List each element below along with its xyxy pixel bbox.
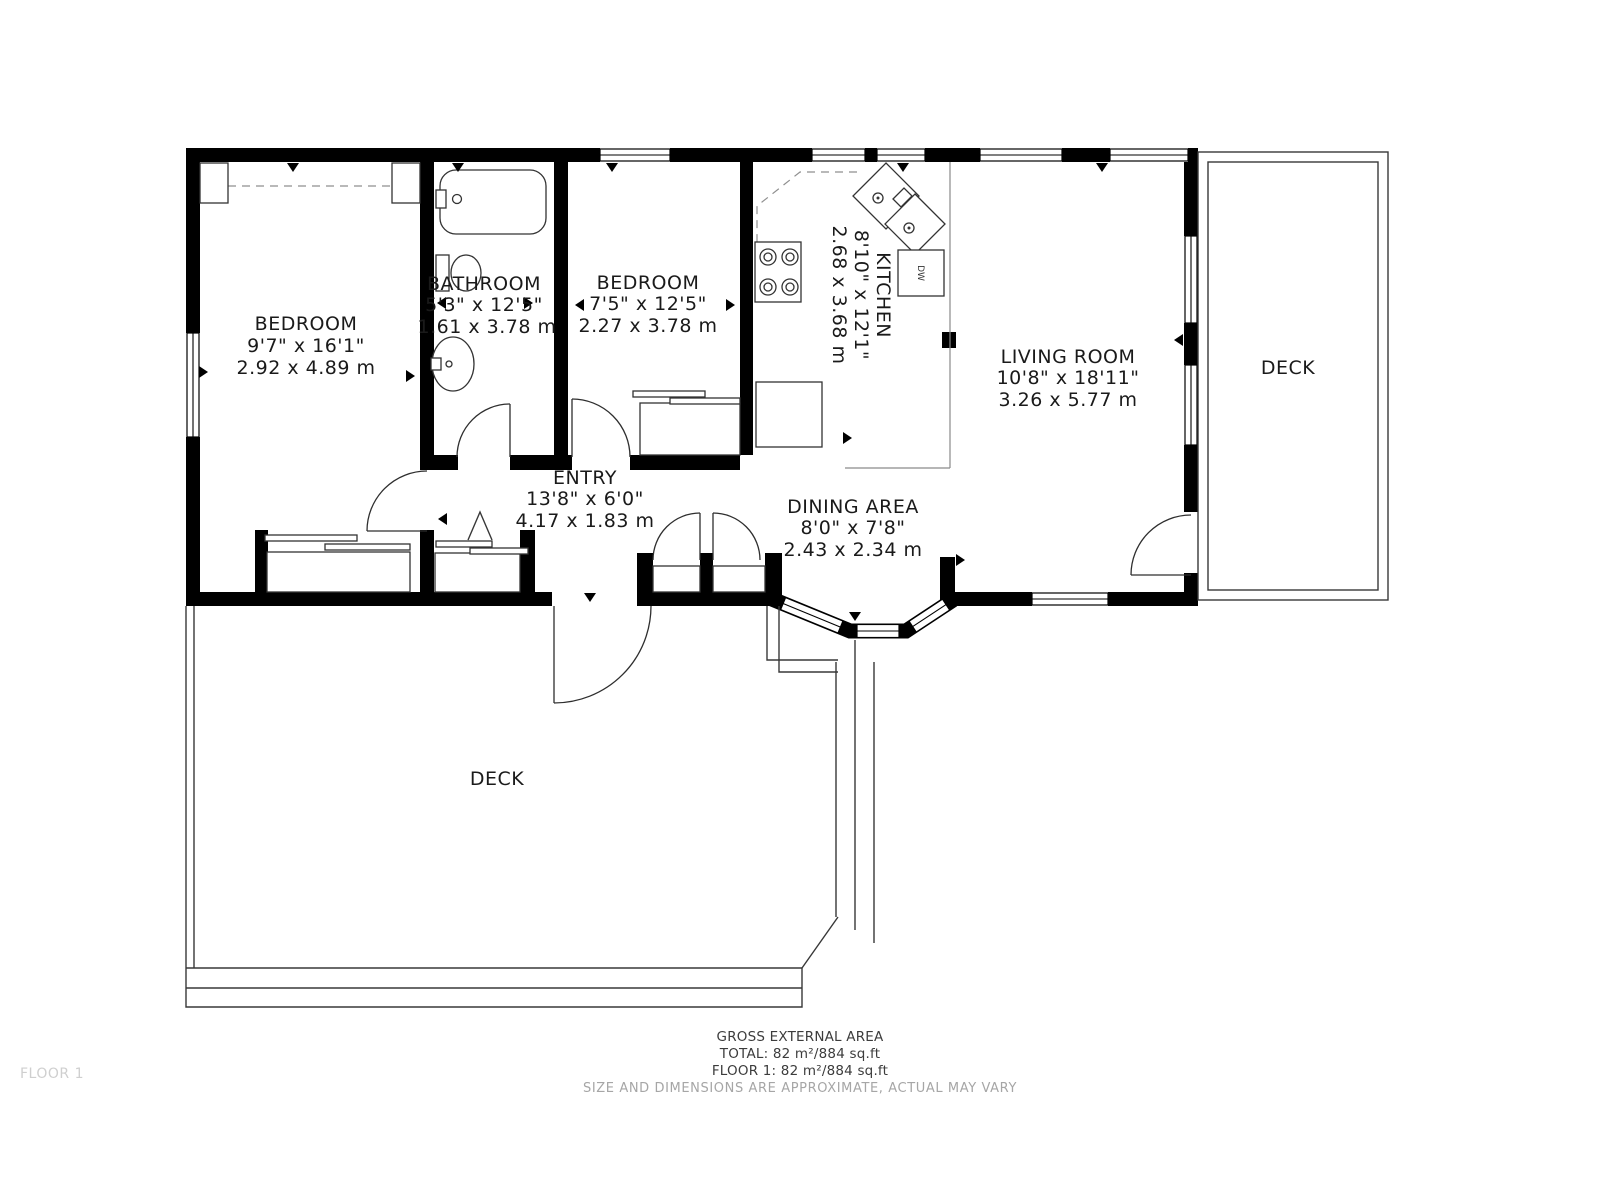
door-bedroom2 [572, 399, 630, 457]
room-size-metric: 2.92 x 4.89 m [237, 357, 376, 379]
room-size-imperial: 5'3" x 12'5" [425, 294, 543, 316]
room-size-metric: 1.61 x 3.78 m [418, 316, 557, 338]
room-size-metric: 2.43 x 2.34 m [784, 539, 923, 561]
window-top-kitchen-left [812, 149, 865, 161]
label-dining-area: DINING AREA 8'0" x 7'8" 2.43 x 2.34 m [784, 496, 923, 561]
label-deck-right: DECK [1261, 357, 1315, 379]
bedroom2-closet [633, 391, 740, 455]
window-left-bedroom1 [187, 333, 199, 437]
room-size-imperial: 9'7" x 16'1" [247, 335, 365, 357]
kitchen-counter-box [756, 382, 822, 447]
door-entry-main [554, 606, 651, 703]
window-bottom-living [1032, 593, 1108, 605]
room-name: DINING AREA [787, 496, 919, 518]
floor-tag: FLOOR 1 [20, 1066, 84, 1082]
door-living-to-deck [1131, 515, 1191, 575]
door-bedroom1 [367, 471, 427, 531]
window-top-bedroom2 [600, 149, 670, 161]
label-deck-bottom: DECK [470, 768, 524, 790]
room-size-metric: 4.17 x 1.83 m [516, 510, 655, 532]
gross-area-title: GROSS EXTERNAL AREA [717, 1029, 884, 1045]
door-entry-closet-right [713, 513, 760, 560]
dishwasher-icon: DW [898, 250, 944, 296]
label-bathroom: BATHROOM 5'3" x 12'5" 1.61 x 3.78 m [418, 273, 557, 338]
bedroom1-closet [265, 535, 410, 592]
room-name: LIVING ROOM [1001, 346, 1136, 368]
bedroom1-wardrobe [200, 163, 420, 203]
room-name: ENTRY [553, 467, 617, 489]
bathroom-sink-icon [431, 337, 474, 391]
room-size-metric: 2.27 x 3.78 m [579, 315, 718, 337]
footer: GROSS EXTERNAL AREA TOTAL: 82 m²/884 sq.… [20, 1029, 1017, 1096]
coat-hook-icon [468, 512, 492, 540]
room-size-metric: 2.68 x 3.68 m [828, 226, 850, 365]
deck-bottom-outline [186, 606, 874, 1007]
room-name: BEDROOM [255, 313, 358, 335]
label-bedroom2: BEDROOM 7'5" x 12'5" 2.27 x 3.78 m [579, 272, 718, 337]
room-size-metric: 3.26 x 5.77 m [999, 389, 1138, 411]
bathtub-icon [436, 170, 546, 234]
stove-icon [755, 242, 801, 302]
window-right-living-upper [1185, 236, 1197, 323]
disclaimer: SIZE AND DIMENSIONS ARE APPROXIMATE, ACT… [583, 1081, 1017, 1096]
label-living-room: LIVING ROOM 10'8" x 18'11" 3.26 x 5.77 m [997, 346, 1140, 411]
floorplan-svg: DW [0, 0, 1600, 1200]
room-size-imperial: 13'8" x 6'0" [526, 488, 644, 510]
window-top-kitchen-right [877, 149, 925, 161]
floor1-area: FLOOR 1: 82 m²/884 sq.ft [712, 1063, 888, 1079]
total-area: TOTAL: 82 m²/884 sq.ft [719, 1046, 880, 1062]
room-size-imperial: 7'5" x 12'5" [589, 293, 707, 315]
room-name: BEDROOM [597, 272, 700, 294]
room-labels: BEDROOM 9'7" x 16'1" 2.92 x 4.89 m BATHR… [237, 226, 1316, 790]
door-entry-closet-left [653, 513, 700, 560]
room-size-imperial: 10'8" x 18'11" [997, 367, 1140, 389]
room-size-imperial: 8'0" x 7'8" [800, 517, 905, 539]
window-top-living-left [980, 149, 1062, 161]
door-bathroom [457, 404, 510, 457]
entry-closet [435, 512, 528, 592]
room-name: BATHROOM [427, 273, 541, 295]
window-top-living-right [1110, 149, 1188, 161]
label-entry: ENTRY 13'8" x 6'0" 4.17 x 1.83 m [516, 467, 655, 532]
dishwasher-label: DW [915, 265, 925, 281]
floorplan-canvas: DW [0, 0, 1600, 1200]
bay-window [772, 598, 953, 638]
room-size-imperial: 8'10" x 12'1" [850, 230, 872, 360]
label-bedroom1: BEDROOM 9'7" x 16'1" 2.92 x 4.89 m [237, 313, 376, 379]
room-name: KITCHEN [872, 252, 894, 338]
window-right-living-lower [1185, 365, 1197, 445]
label-kitchen: KITCHEN 8'10" x 12'1" 2.68 x 3.68 m [828, 226, 894, 365]
